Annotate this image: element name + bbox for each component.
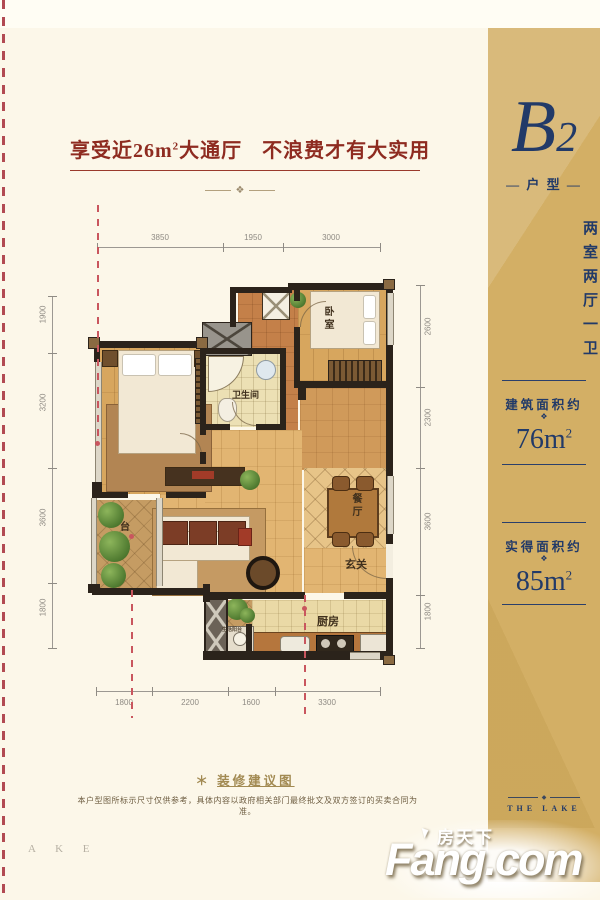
room-label-bathroom: 卫生间 — [232, 388, 259, 401]
dim-value: 3600 — [39, 501, 48, 535]
dim-tick — [283, 243, 284, 252]
note-text: 装修建议图 — [217, 774, 295, 788]
title-part1: 享受近26m — [70, 140, 173, 162]
floorplan-flyer-page: { "header": { "title_p1": "享受近26m", "tit… — [0, 0, 600, 900]
dim-value: 2600 — [424, 310, 433, 344]
pillow — [363, 321, 376, 345]
dim-tick — [48, 468, 57, 469]
dim-value: 3200 — [39, 386, 48, 420]
wall-segment — [92, 588, 210, 595]
divider — [502, 380, 586, 381]
wall-segment — [203, 592, 305, 599]
dining-chair — [356, 476, 374, 491]
fang-logo: 房天下 Fang.com — [385, 820, 600, 898]
dim-tick — [223, 243, 224, 252]
area-ornament-icon: ❖ — [488, 554, 600, 563]
divider — [502, 604, 586, 605]
layout-text: 两室两厅一卫 — [488, 220, 600, 364]
area-ornament-icon: ❖ — [488, 412, 600, 421]
wall-pier — [383, 279, 395, 290]
red-dashed-line — [304, 595, 306, 718]
sofa-cushion — [160, 521, 188, 545]
dim-value: 1900 — [39, 298, 48, 332]
wall-segment — [256, 424, 286, 430]
left-dashed-border — [2, 0, 5, 900]
room-label-entry: 玄关 — [345, 556, 367, 572]
coffee-table — [246, 556, 280, 590]
dim-value: 2300 — [424, 401, 433, 435]
divider — [502, 522, 586, 523]
unit-tag: — 户 型 — — [488, 174, 600, 193]
dim-tick — [416, 468, 425, 469]
dim-value: 1800 — [39, 591, 48, 625]
wall-segment — [92, 492, 128, 498]
dim-tick — [48, 583, 57, 584]
wall-segment — [344, 592, 392, 599]
wall-segment — [200, 341, 206, 435]
top-band — [0, 0, 600, 28]
wall-segment — [288, 283, 392, 290]
brand-ornament-icon: ◆ — [502, 794, 586, 801]
note-star: ＊ — [195, 774, 211, 788]
wall-segment — [246, 624, 252, 652]
dim-value: 3600 — [424, 505, 433, 539]
divider — [502, 464, 586, 465]
window — [387, 476, 394, 534]
red-dot — [95, 441, 100, 446]
dim-line-left — [52, 296, 53, 648]
accent-pillow — [238, 528, 252, 546]
red-dot — [302, 606, 307, 611]
dining-chair — [356, 532, 374, 547]
hall-cabinet — [262, 292, 290, 320]
dim-tick — [275, 687, 276, 696]
pillow — [158, 354, 192, 376]
plant — [240, 470, 260, 490]
wall-segment — [234, 287, 292, 293]
wall-segment — [200, 452, 206, 464]
watermark-letters: A K E — [28, 843, 90, 855]
page-title: 享受近26m2大通厅不浪费才有大实用 — [70, 134, 420, 171]
dim-line-top — [97, 247, 381, 248]
wall-segment — [298, 388, 306, 400]
wall-segment — [203, 584, 210, 602]
dim-tick — [96, 687, 97, 696]
balcony-railing — [91, 498, 97, 584]
dim-value: 1800 — [104, 698, 144, 707]
disclaimer-text: 本户型图所标示尺寸仅供参考，具体内容以政府相关部门最终批文及双方签订的买卖合同为… — [70, 795, 425, 817]
room-label-balcony: 台 — [120, 518, 130, 533]
wall-pier — [383, 655, 395, 665]
pillow — [363, 295, 376, 319]
room-label-kitchen: 厨房 — [317, 613, 339, 629]
wall-segment — [94, 341, 206, 348]
dim-tick — [416, 648, 425, 649]
wall-segment — [294, 381, 392, 388]
washer-door — [233, 632, 247, 646]
built-area-value: 76m2 — [488, 424, 600, 456]
flourish-icon: ❖ — [190, 182, 290, 198]
dim-tick — [416, 285, 425, 286]
dim-tick — [380, 243, 381, 252]
wall-segment — [230, 287, 236, 327]
dim-value: 1950 — [233, 233, 273, 242]
burner — [321, 639, 330, 648]
wall-segment — [202, 424, 230, 430]
window — [387, 293, 394, 345]
nightstand — [102, 350, 118, 367]
dining-chair — [332, 532, 350, 547]
balcony-door — [156, 498, 163, 586]
plant — [240, 608, 255, 623]
wall-segment — [166, 492, 206, 498]
wall-segment — [294, 327, 300, 387]
dining-chair — [332, 476, 350, 491]
note-title: ＊ 装修建议图 — [95, 770, 395, 789]
dim-tick — [416, 387, 425, 388]
room-label-service: 生活阳台 — [222, 626, 242, 633]
dim-value: 3850 — [140, 233, 180, 242]
plant — [101, 563, 126, 588]
fang-logo-en: Fang.com — [385, 834, 582, 886]
red-dashed-line — [131, 590, 133, 718]
dim-tick — [48, 648, 57, 649]
tv-decor — [192, 471, 214, 479]
dim-tick — [228, 687, 229, 696]
hall-floor — [300, 388, 388, 470]
dim-line-right — [420, 285, 421, 648]
wall-segment — [280, 348, 286, 430]
dim-tick — [48, 353, 57, 354]
actual-area-value: 85m2 — [488, 566, 600, 598]
sidebar: B2 — 户 型 — 两室两厅一卫 建筑面积约 ❖ 76m2 实得面积约 ❖ 8… — [488, 28, 600, 882]
dim-tick — [380, 687, 381, 696]
plant — [99, 531, 130, 562]
red-dashed-line — [97, 205, 99, 445]
title-part2: 大通厅 — [179, 140, 242, 162]
room-label-dining: 餐厅 — [348, 493, 363, 519]
brand-name: THE LAKE — [488, 804, 600, 813]
title-part3: 不浪费才有大实用 — [262, 140, 430, 162]
dim-line-bottom — [96, 691, 381, 692]
dim-tick — [152, 687, 153, 696]
dim-tick — [48, 296, 57, 297]
red-dot — [129, 534, 134, 539]
actual-area-label: 实得面积约 — [488, 536, 600, 555]
unit-letter: B — [511, 86, 556, 168]
dim-value: 3000 — [311, 233, 351, 242]
dim-value: 2200 — [170, 698, 210, 707]
wall-segment — [202, 348, 286, 354]
sofa-cushion — [189, 521, 217, 545]
pillow — [122, 354, 156, 376]
wall-pier — [196, 337, 208, 349]
built-area-label: 建筑面积约 — [488, 394, 600, 413]
entry-door-gap — [386, 544, 393, 578]
room-label-bedroom2: 卧室 — [320, 306, 335, 332]
sink — [256, 360, 276, 380]
dim-value: 1600 — [231, 698, 271, 707]
dim-value: 3300 — [307, 698, 347, 707]
wall-segment — [294, 287, 300, 301]
window — [350, 652, 380, 660]
burner — [337, 639, 346, 648]
unit-code: B2 — [488, 90, 600, 164]
dim-value: 1800 — [424, 595, 433, 629]
unit-digit: 2 — [556, 115, 577, 161]
